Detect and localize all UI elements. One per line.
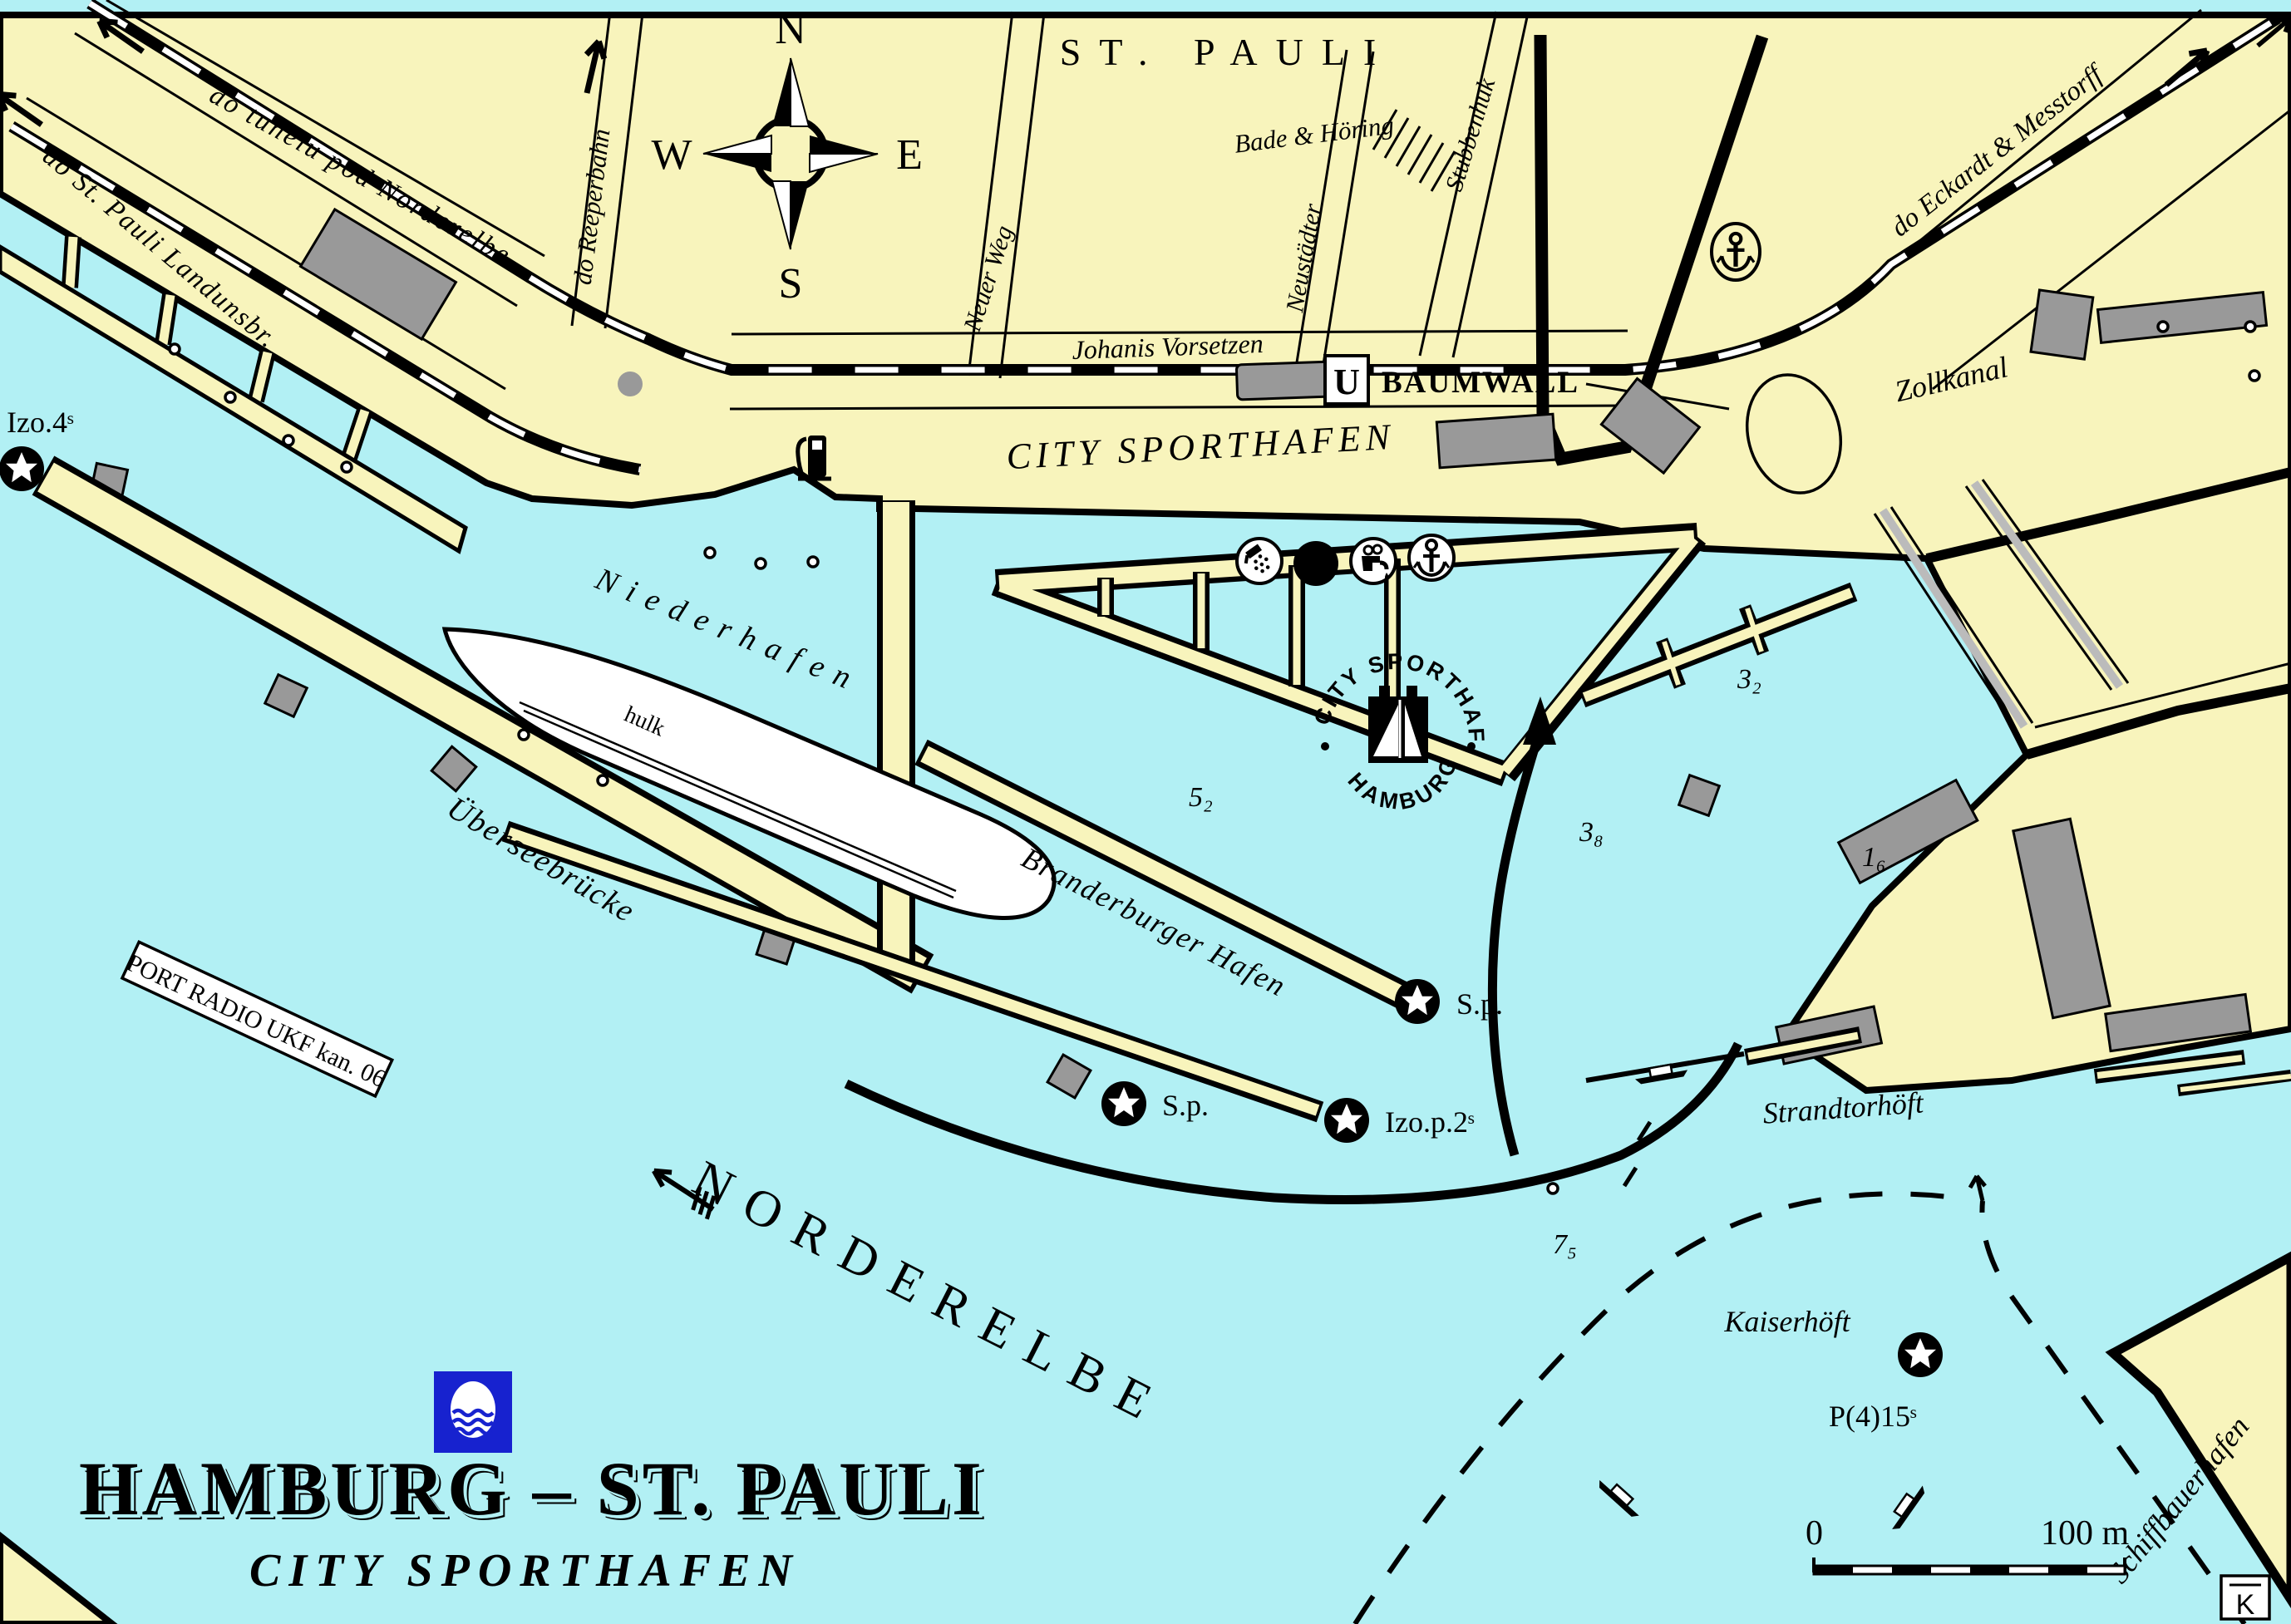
light-sp2-label: S.p. — [1162, 1089, 1209, 1122]
scale-bar: 0 100 m — [1806, 1514, 2130, 1574]
anchor-icon — [1409, 535, 1454, 580]
depth-75: 7₅ — [1553, 1229, 1577, 1260]
breakwater-curve — [846, 1044, 1738, 1199]
compass-e: E — [896, 131, 923, 179]
light-sp1-icon — [1395, 979, 1440, 1024]
port-radio-label: PORT RADIO UKF kan. 06 — [122, 949, 390, 1094]
map-title: HAMBURG – ST. PAULI — [79, 1446, 985, 1531]
logo-emblem — [1368, 686, 1428, 763]
scale-end: 100 m — [2041, 1514, 2130, 1553]
port-radio-box: PORT RADIO UKF kan. 06 — [121, 941, 394, 1096]
depth-52: 5₂ — [1189, 782, 1213, 813]
compass-n: N — [775, 6, 806, 53]
title-block: HAMBURG – ST. PAULI CITY SPORTHAFEN — [79, 1371, 985, 1597]
watertap-icon — [1351, 539, 1396, 583]
shower-icon — [1237, 539, 1282, 583]
ubahn-badge: U — [1333, 362, 1360, 402]
ueberseebruecke-pier — [43, 475, 923, 974]
light-p415-icon — [1898, 1332, 1943, 1377]
wc-icon: WC — [1293, 541, 1338, 586]
district-label-st-pauli: ST. PAULI — [1060, 31, 1394, 73]
corner-mark-letter: K — [2236, 1589, 2255, 1621]
water-label-norderelbe: NORDERELBE — [684, 1150, 1176, 1439]
svg-text:WC: WC — [1298, 551, 1334, 576]
depth-38: 3₈ — [1579, 817, 1604, 848]
corner-land — [0, 1536, 112, 1624]
station-name: BAUMWALL — [1382, 366, 1579, 400]
blue-flag-icon — [434, 1371, 512, 1453]
marina-pontoons — [996, 537, 1697, 775]
entrance-arrow-icon — [1492, 731, 1540, 1155]
compass-s: S — [779, 260, 803, 308]
place-label-kaiserhoeft: Kaiserhöft — [1723, 1305, 1850, 1338]
light-p415-label: P(4)15ˢ — [1829, 1400, 1917, 1433]
map-subtitle: CITY SPORTHAFEN — [249, 1545, 801, 1597]
light-izo4-icon — [0, 446, 44, 491]
lights: Izo.4ˢ S.p. S.p. Izo.p.2ˢ P(4)15ˢ — [0, 406, 1943, 1433]
scale-zero: 0 — [1806, 1514, 1823, 1553]
depth-32: 3₂ — [1737, 664, 1761, 695]
light-izo4-label: Izo.4ˢ — [7, 406, 74, 439]
harbor-map: N W E S do tunelu pod Norderelbe do St. … — [0, 0, 2291, 1624]
compass-w: W — [651, 131, 692, 179]
light-sp1-label: S.p. — [1456, 987, 1503, 1021]
light-sp2-icon — [1101, 1081, 1146, 1126]
light-izop2-icon — [1324, 1098, 1369, 1143]
light-izop2-label: Izo.p.2ˢ — [1385, 1105, 1475, 1139]
corner-mark: K — [2221, 1576, 2269, 1621]
place-label-strandtorhoeft: Strandtorhöft — [1761, 1085, 1925, 1129]
depth-16: 1₆ — [1862, 842, 1886, 873]
